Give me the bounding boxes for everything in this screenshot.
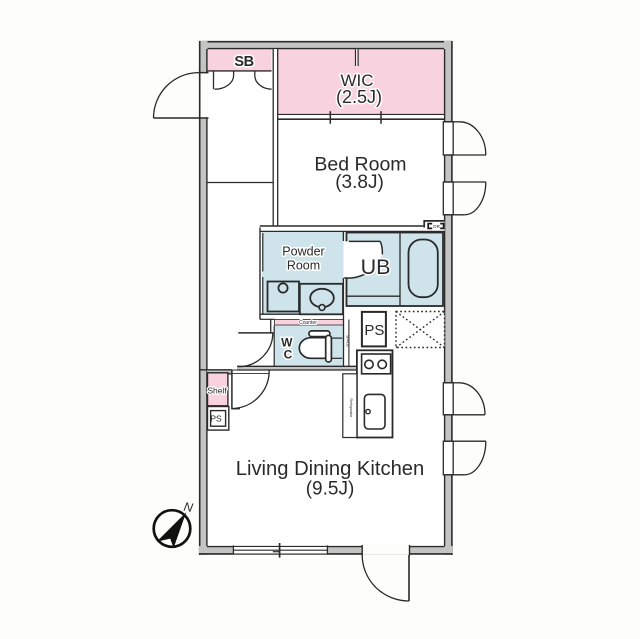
svg-text:Room: Room bbox=[287, 258, 320, 272]
svg-text:(3.8J): (3.8J) bbox=[335, 172, 384, 193]
svg-text:DR: DR bbox=[433, 224, 440, 229]
svg-text:UB: UB bbox=[361, 255, 391, 279]
svg-text:PS: PS bbox=[210, 413, 222, 423]
svg-text:SB: SB bbox=[234, 54, 253, 70]
svg-text:(9.5J): (9.5J) bbox=[306, 479, 355, 500]
svg-text:(2.5J): (2.5J) bbox=[336, 87, 382, 107]
svg-text:C: C bbox=[284, 347, 293, 361]
svg-text:Shelf: Shelf bbox=[207, 385, 227, 395]
svg-text:Powder: Powder bbox=[282, 245, 324, 259]
svg-text:Counter: Counter bbox=[299, 320, 317, 326]
svg-text:SPACE: SPACE bbox=[345, 335, 349, 348]
svg-text:Refrigerator: Refrigerator bbox=[349, 399, 353, 419]
svg-text:Living Dining Kitchen: Living Dining Kitchen bbox=[236, 458, 425, 480]
svg-text:PS: PS bbox=[364, 322, 384, 339]
